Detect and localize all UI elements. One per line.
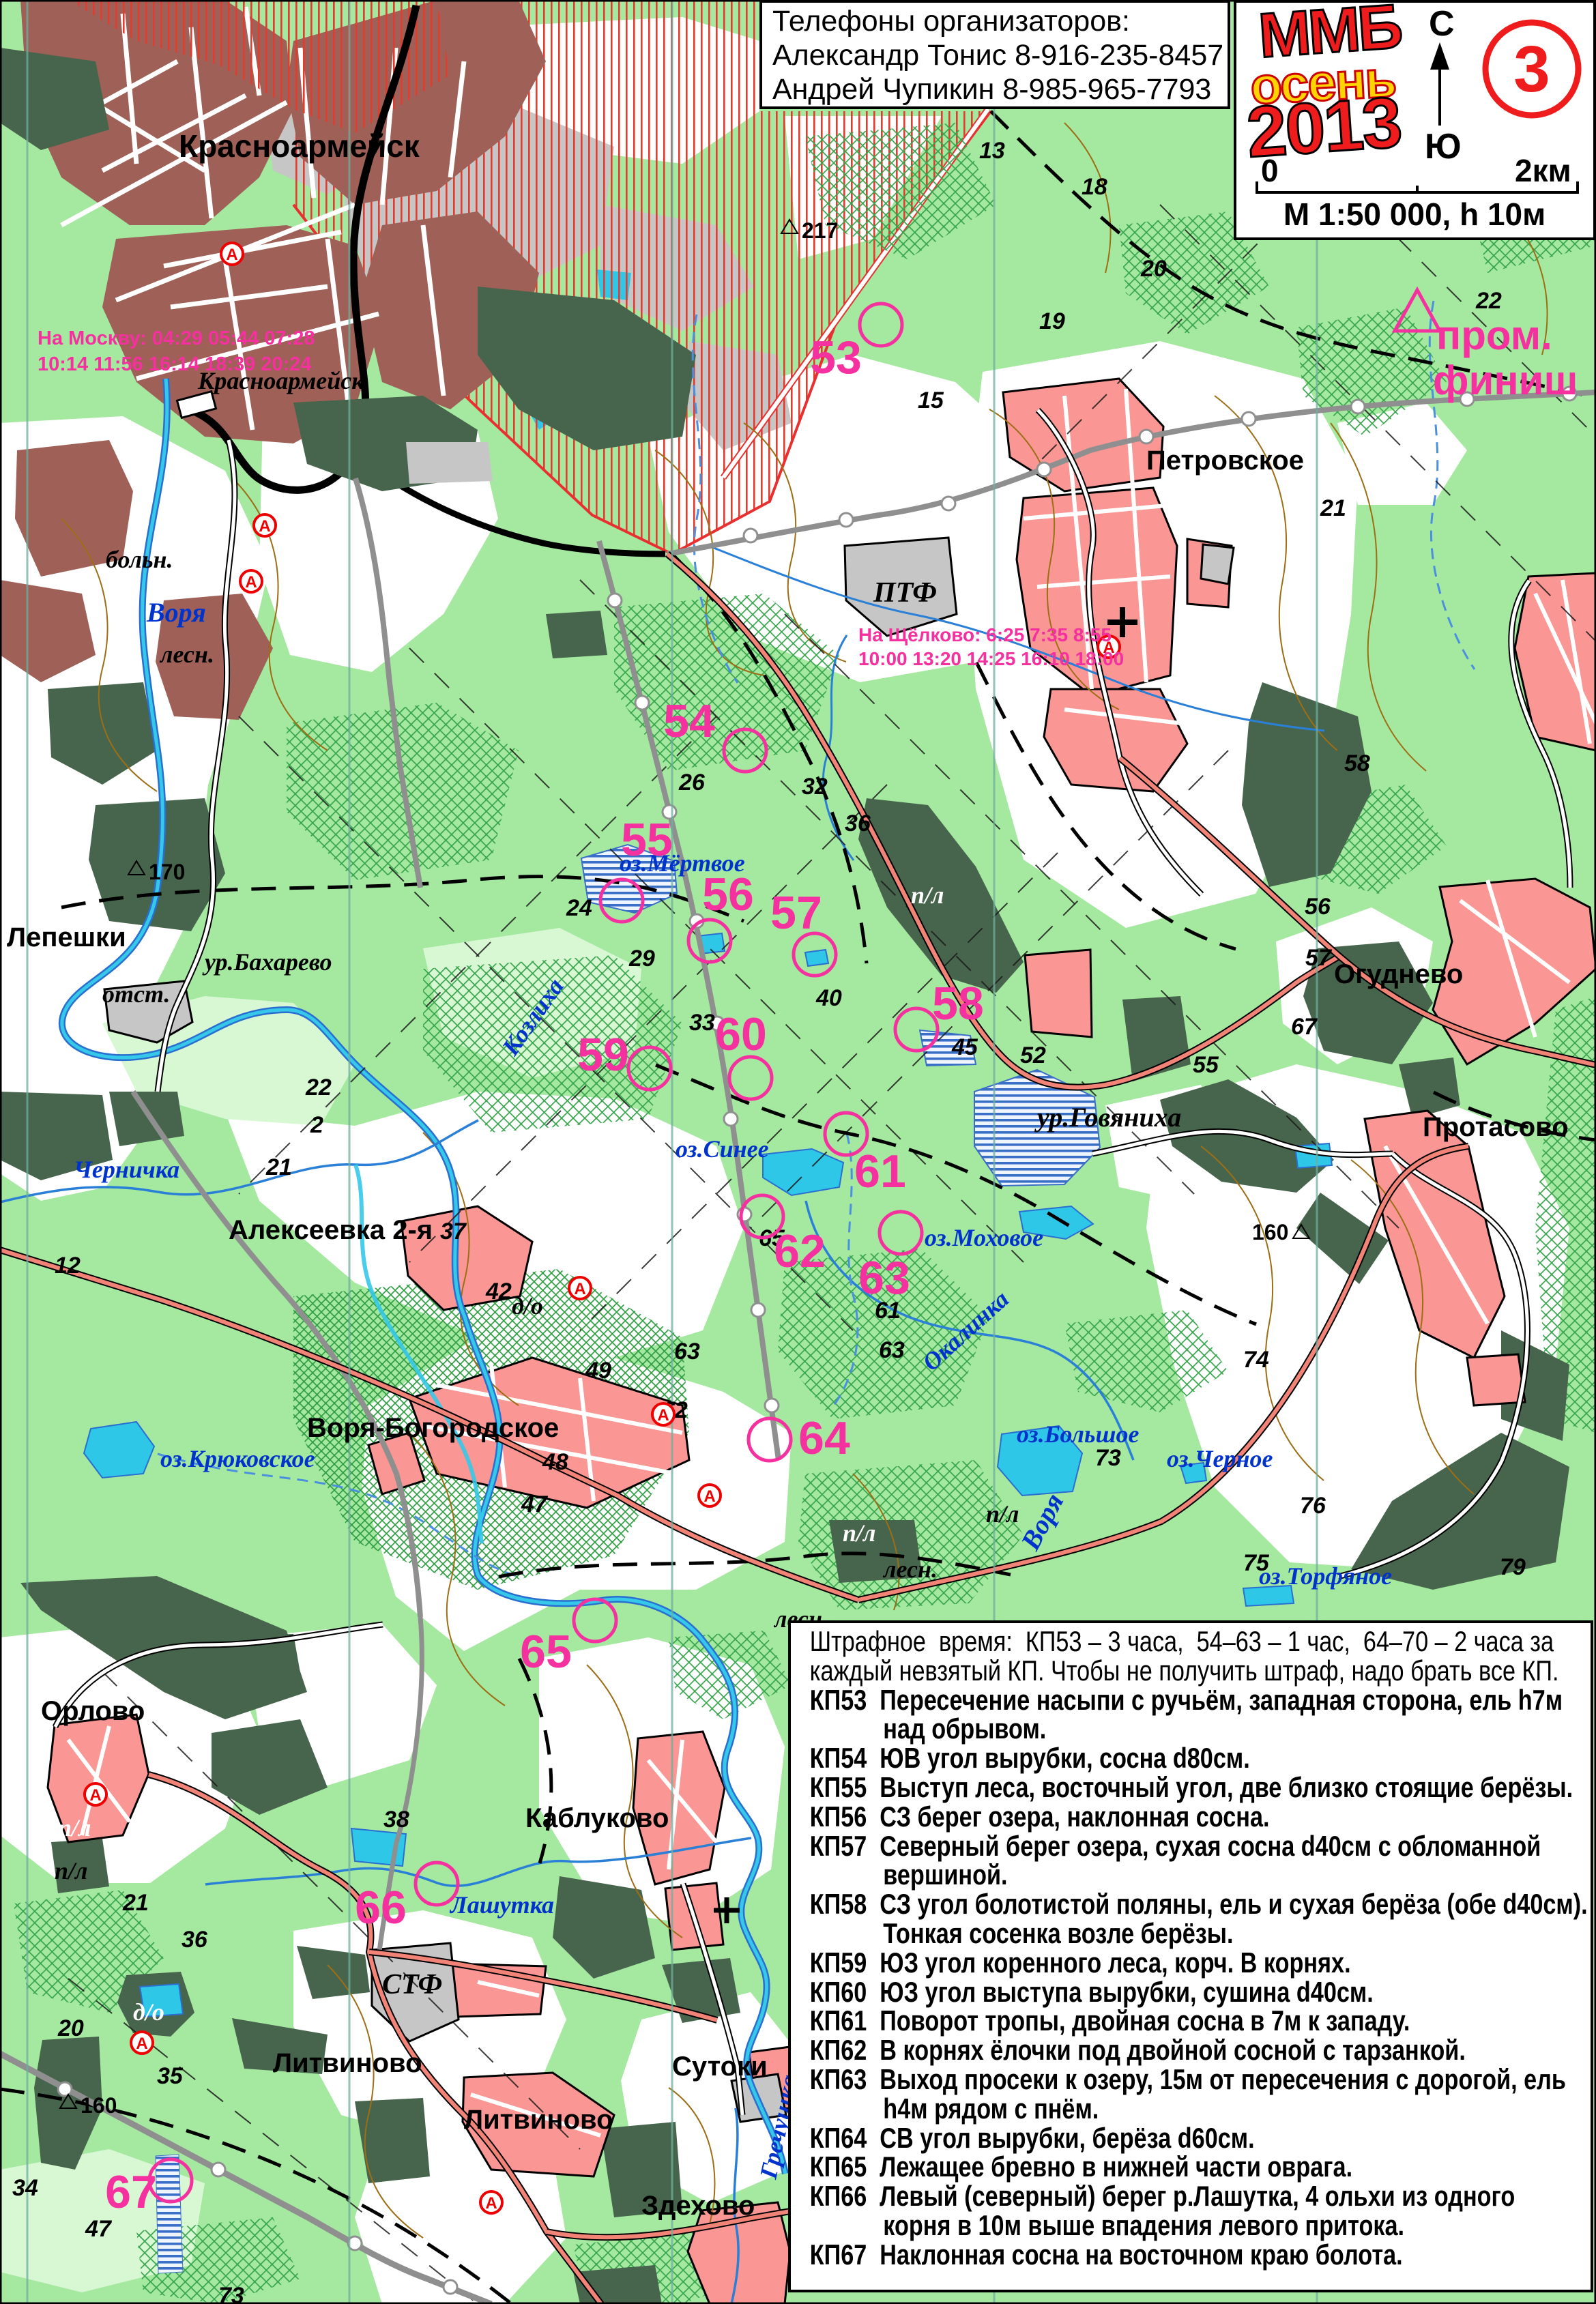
svg-text:33: 33 bbox=[689, 1010, 715, 1036]
svg-text:10:14 11:56 16:14 18:39 20:24: 10:14 11:56 16:14 18:39 20:24 bbox=[38, 353, 311, 375]
svg-text:32: 32 bbox=[802, 774, 828, 800]
svg-text:А: А bbox=[485, 2194, 497, 2213]
svg-text:217: 217 bbox=[802, 218, 838, 243]
svg-text:29: 29 bbox=[628, 946, 655, 972]
svg-text:оз.Большое: оз.Большое bbox=[1017, 1420, 1139, 1448]
svg-text:Каблуково: Каблуково bbox=[525, 1803, 669, 1833]
svg-text:больн.: больн. bbox=[106, 546, 173, 573]
svg-text:Здехово: Здехово bbox=[641, 2191, 755, 2221]
svg-text:52: 52 bbox=[1020, 1042, 1046, 1068]
svg-text:58: 58 bbox=[1344, 750, 1370, 776]
svg-text:35: 35 bbox=[157, 2063, 184, 2089]
svg-text:40: 40 bbox=[815, 985, 842, 1011]
svg-text:56: 56 bbox=[1305, 894, 1331, 920]
svg-text:10:00 13:20 14:25 16:10 18:00: 10:00 13:20 14:25 16:10 18:00 bbox=[858, 648, 1124, 669]
svg-text:А: А bbox=[136, 2035, 147, 2053]
svg-text:п/л: п/л bbox=[986, 1500, 1019, 1528]
svg-text:3: 3 bbox=[1513, 33, 1550, 106]
svg-text:76: 76 bbox=[1300, 1493, 1326, 1519]
svg-text:49: 49 bbox=[585, 1358, 611, 1384]
svg-text:Огуднево: Огуднево bbox=[1334, 959, 1463, 989]
svg-text:160: 160 bbox=[81, 2093, 117, 2118]
svg-text:47: 47 bbox=[521, 1491, 549, 1517]
svg-text:12: 12 bbox=[55, 1253, 81, 1279]
svg-text:Красноармейск: Красноармейск bbox=[179, 128, 420, 164]
svg-text:На Щёлково: 6:25 7:35 8:55: На Щёлково: 6:25 7:35 8:55 bbox=[858, 624, 1112, 645]
svg-text:26: 26 bbox=[678, 770, 706, 796]
svg-text:65: 65 bbox=[520, 1626, 572, 1678]
svg-text:36: 36 bbox=[182, 1927, 208, 1953]
svg-text:74: 74 bbox=[1243, 1347, 1269, 1373]
svg-text:А: А bbox=[245, 573, 257, 592]
svg-text:64: 64 bbox=[798, 1412, 850, 1464]
svg-text:19: 19 bbox=[1039, 308, 1065, 334]
svg-text:лесн.: лесн. bbox=[882, 1556, 938, 1583]
svg-text:оз.Черное: оз.Черное bbox=[1167, 1445, 1273, 1472]
svg-text:73: 73 bbox=[218, 2283, 244, 2304]
svg-text:61: 61 bbox=[854, 1146, 906, 1197]
svg-text:пром.: пром. bbox=[1436, 312, 1552, 358]
svg-text:22: 22 bbox=[1475, 288, 1502, 314]
svg-text:д/о: д/о bbox=[512, 1292, 543, 1319]
svg-text:п/л: п/л bbox=[58, 1814, 91, 1841]
svg-text:170: 170 bbox=[149, 860, 185, 884]
svg-text:А: А bbox=[703, 1487, 715, 1506]
svg-text:Сутоки: Сутоки bbox=[672, 2052, 768, 2082]
svg-text:А: А bbox=[226, 246, 237, 264]
svg-text:п/л: п/л bbox=[843, 1519, 876, 1547]
svg-text:57: 57 bbox=[1305, 945, 1333, 971]
svg-text:СТФ: СТФ bbox=[382, 1969, 442, 2000]
svg-text:21: 21 bbox=[122, 1890, 149, 1916]
svg-text:п/л: п/л bbox=[55, 1857, 88, 1884]
svg-text:А: А bbox=[259, 517, 270, 536]
svg-text:48: 48 bbox=[542, 1449, 568, 1475]
svg-text:58: 58 bbox=[932, 978, 984, 1030]
svg-text:13: 13 bbox=[979, 138, 1005, 164]
svg-text:36: 36 bbox=[845, 811, 871, 836]
svg-text:24: 24 bbox=[566, 895, 592, 921]
svg-text:2: 2 bbox=[310, 1112, 323, 1138]
svg-text:34: 34 bbox=[12, 2175, 38, 2201]
svg-text:Воря: Воря bbox=[146, 597, 206, 628]
svg-text:ПТФ: ПТФ bbox=[873, 577, 937, 609]
svg-text:60: 60 bbox=[715, 1008, 767, 1060]
svg-text:38: 38 bbox=[383, 1807, 409, 1833]
svg-text:Лашутка: Лашутка bbox=[449, 1891, 554, 1919]
svg-text:20: 20 bbox=[1140, 256, 1167, 282]
svg-text:73: 73 bbox=[1095, 1445, 1121, 1471]
svg-text:Петровское: Петровское bbox=[1146, 446, 1304, 476]
svg-text:Орлово: Орлово bbox=[41, 1696, 145, 1726]
svg-text:0: 0 bbox=[1261, 153, 1279, 188]
svg-text:54: 54 bbox=[663, 695, 715, 747]
svg-text:42: 42 bbox=[485, 1279, 512, 1304]
svg-text:67: 67 bbox=[1291, 1014, 1318, 1040]
svg-text:оз.Торфяное: оз.Торфяное bbox=[1259, 1562, 1392, 1590]
svg-text:С: С bbox=[1429, 4, 1455, 44]
svg-text:62: 62 bbox=[774, 1225, 826, 1277]
svg-text:37: 37 bbox=[440, 1219, 467, 1244]
svg-text:Протасово: Протасово bbox=[1423, 1112, 1569, 1142]
svg-text:21: 21 bbox=[265, 1154, 292, 1180]
svg-text:А: А bbox=[657, 1406, 669, 1425]
svg-text:79: 79 bbox=[1500, 1554, 1526, 1580]
svg-text:п/л: п/л bbox=[911, 881, 944, 909]
svg-text:Воря-Богородское: Воря-Богородское bbox=[307, 1413, 559, 1443]
svg-text:20: 20 bbox=[57, 2015, 84, 2041]
svg-text:Лепешки: Лепешки bbox=[7, 922, 126, 952]
svg-text:На Москву: 04:29 05:44 07:28: На Москву: 04:29 05:44 07:28 bbox=[38, 327, 315, 349]
svg-text:Черничка: Черничка bbox=[74, 1156, 179, 1183]
svg-text:оз.Моховое: оз.Моховое bbox=[925, 1224, 1043, 1251]
svg-text:Алексеевка 2-я: Алексеевка 2-я bbox=[229, 1215, 433, 1245]
svg-text:55: 55 bbox=[1193, 1052, 1219, 1078]
svg-text:22: 22 bbox=[305, 1075, 332, 1100]
svg-text:160: 160 bbox=[1252, 1220, 1288, 1244]
svg-text:А: А bbox=[574, 1280, 585, 1298]
svg-text:63: 63 bbox=[879, 1337, 905, 1363]
svg-text:Ю: Ю bbox=[1425, 127, 1462, 166]
svg-text:55: 55 bbox=[621, 814, 673, 866]
svg-text:56: 56 bbox=[702, 869, 754, 920]
svg-text:67: 67 bbox=[105, 2166, 157, 2218]
svg-text:финиш: финиш bbox=[1433, 358, 1578, 403]
svg-text:ур.Говяниха: ур.Говяниха bbox=[1034, 1102, 1181, 1133]
svg-text:21: 21 bbox=[1320, 495, 1346, 521]
svg-text:59: 59 bbox=[577, 1029, 629, 1081]
svg-text:2км: 2км bbox=[1515, 153, 1571, 188]
svg-text:А: А bbox=[89, 1786, 101, 1805]
svg-text:отст.: отст. bbox=[102, 980, 170, 1008]
svg-text:18: 18 bbox=[1082, 174, 1107, 200]
svg-text:оз.Крюковское: оз.Крюковское bbox=[160, 1445, 315, 1472]
svg-text:Литвиново: Литвиново bbox=[273, 2048, 422, 2078]
svg-text:Литвиново: Литвиново bbox=[464, 2105, 613, 2135]
svg-text:лесн.: лесн. bbox=[159, 641, 214, 668]
svg-text:оз.Синее: оз.Синее bbox=[676, 1135, 769, 1163]
svg-text:45: 45 bbox=[951, 1034, 978, 1060]
svg-text:д/о: д/о bbox=[133, 1998, 164, 2026]
svg-text:ур.Бахарево: ур.Бахарево bbox=[202, 948, 332, 976]
svg-text:63: 63 bbox=[674, 1339, 700, 1365]
svg-text:57: 57 bbox=[770, 887, 822, 939]
svg-text:66: 66 bbox=[355, 1882, 407, 1934]
svg-text:47: 47 bbox=[85, 2216, 113, 2242]
svg-text:75: 75 bbox=[1243, 1550, 1270, 1576]
svg-text:М 1:50 000, h 10м: М 1:50 000, h 10м bbox=[1283, 196, 1546, 232]
svg-text:15: 15 bbox=[918, 388, 944, 413]
svg-text:53: 53 bbox=[810, 332, 862, 383]
svg-text:63: 63 bbox=[858, 1252, 910, 1304]
